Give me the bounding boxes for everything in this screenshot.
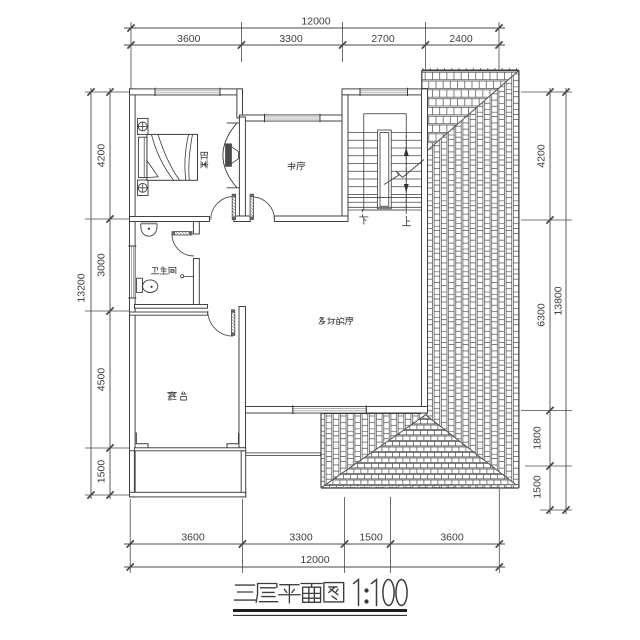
svg-text:3000: 3000 <box>96 253 108 277</box>
svg-text:1800: 1800 <box>532 426 544 450</box>
svg-text:2400: 2400 <box>449 33 473 45</box>
svg-text:1500: 1500 <box>96 460 108 484</box>
svg-text:3600: 3600 <box>181 532 205 544</box>
svg-text:6300: 6300 <box>536 303 548 327</box>
svg-text:3600: 3600 <box>440 532 464 544</box>
svg-text:12000: 12000 <box>301 16 330 28</box>
svg-text:4200: 4200 <box>96 144 108 168</box>
svg-text:4500: 4500 <box>96 368 108 392</box>
svg-text:13200: 13200 <box>76 273 88 302</box>
svg-text:1500: 1500 <box>359 532 383 544</box>
svg-text:13800: 13800 <box>553 286 565 315</box>
svg-text:2700: 2700 <box>371 33 395 45</box>
svg-text:4200: 4200 <box>536 144 548 168</box>
svg-text:3300: 3300 <box>289 532 313 544</box>
svg-text:3300: 3300 <box>279 33 303 45</box>
svg-text:3600: 3600 <box>177 33 201 45</box>
svg-text:12000: 12000 <box>300 554 329 566</box>
svg-text:1500: 1500 <box>532 475 544 499</box>
